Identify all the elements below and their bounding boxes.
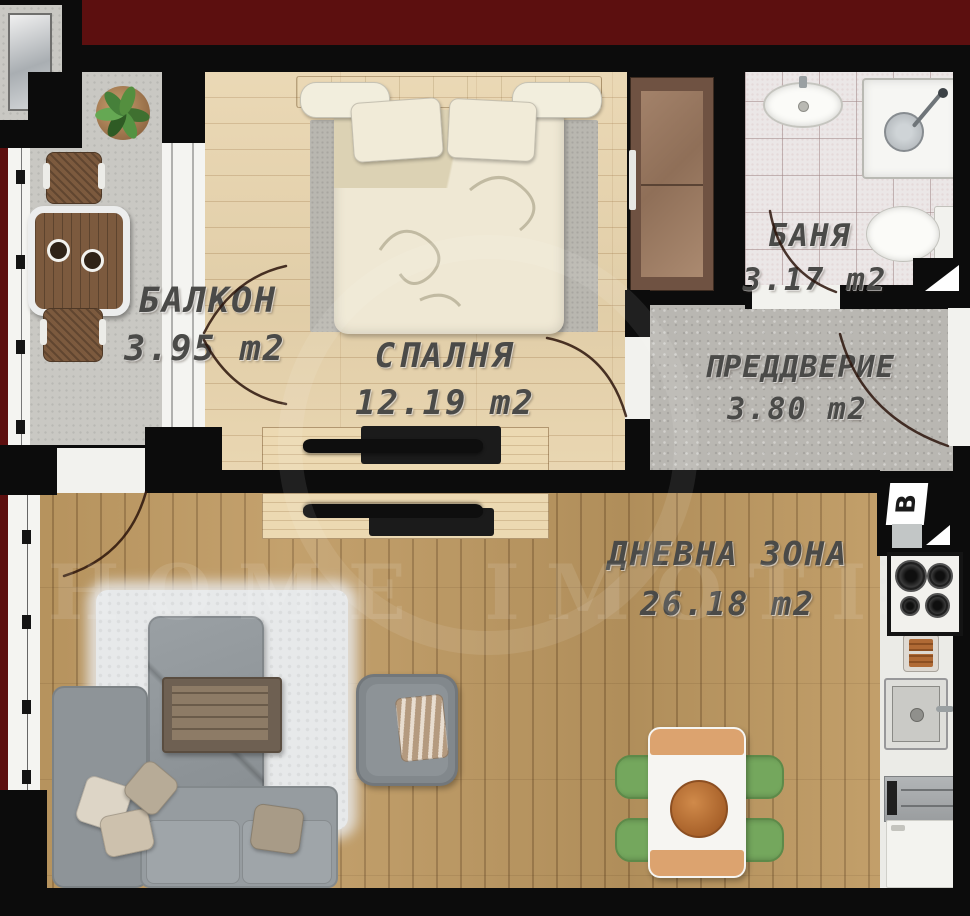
cup [81, 249, 104, 272]
window-frame-tick [22, 770, 31, 784]
balcony-chair-bottom [43, 308, 103, 362]
wall [82, 45, 970, 72]
room-area-bathroom: 3.17 m2 [730, 262, 900, 298]
bathroom-sink [763, 82, 843, 128]
balcony-chair-top [46, 152, 102, 204]
armchair-pillow [395, 694, 449, 763]
kitchen-sink [884, 678, 948, 750]
room-label-living: ДНЕВНА ЗОНА [578, 534, 878, 573]
window-frame-tick [16, 170, 25, 184]
window-frame-tick [16, 420, 25, 434]
drain [798, 101, 809, 112]
room-area-balcony: 3.95 m2 [100, 329, 310, 369]
wardrobe-handle [629, 150, 636, 210]
gas-hob [887, 552, 963, 636]
bed-pillow-left [350, 97, 444, 163]
door-opening-balcony-living [57, 448, 145, 493]
coffee-table [162, 677, 282, 753]
toilet [866, 204, 956, 262]
wall [222, 470, 880, 493]
balcony-side-windows [8, 148, 30, 445]
bowl [670, 780, 728, 838]
faucet [799, 76, 807, 88]
tv [303, 504, 483, 518]
sink-faucet [936, 706, 954, 712]
dining-table [648, 727, 746, 878]
room-label-bathroom: БАНЯ [745, 218, 875, 254]
sofa-seat [140, 786, 338, 888]
door-opening-entrance [948, 308, 970, 446]
wall [62, 0, 82, 148]
bed-pillow-right [446, 98, 537, 163]
window-frame-tick [22, 700, 31, 714]
boiler-label: B [891, 494, 923, 514]
sofa-cushion [146, 820, 240, 884]
room-area-bedroom: 12.19 m2 [320, 383, 570, 423]
room-area-living: 26.18 m2 [605, 584, 850, 623]
tv-console-bedroom [262, 427, 549, 473]
hob-knob [880, 614, 886, 620]
toilet-bowl [866, 206, 940, 262]
wall [0, 888, 970, 916]
window-frame-tick [16, 255, 25, 269]
door-opening-bedroom [625, 337, 650, 419]
room-area-hallway: 3.80 m2 [690, 392, 905, 427]
boiler-base [892, 524, 922, 548]
window-frame-tick [16, 340, 25, 354]
floor-plan: B БАЛКОН 3.95 m2 СПАЛНЯ 12.19 m2 БАНЯ 3.… [0, 0, 970, 916]
plant [94, 84, 152, 142]
hallway-floor [648, 305, 953, 471]
shower-cabin [862, 78, 959, 179]
sofa-pillow [249, 803, 305, 856]
sink-drain [910, 708, 924, 722]
vent-triangle [926, 525, 950, 545]
room-label-balcony: БАЛКОН [108, 281, 308, 321]
cup [47, 239, 70, 262]
facade-band-top [80, 0, 970, 45]
hob-knob [880, 560, 886, 566]
wardrobe [630, 77, 714, 291]
wall [953, 478, 970, 890]
tv [303, 439, 483, 453]
wall [0, 445, 57, 495]
window-frame-tick [22, 530, 31, 544]
room-label-hallway: ПРЕДДВЕРИЕ [652, 350, 947, 385]
wall [0, 120, 62, 148]
armchair [356, 674, 458, 786]
shaft-symbol [913, 258, 963, 294]
dishwasher [884, 776, 962, 822]
boiler-icon: B [886, 483, 928, 525]
wall [0, 790, 47, 916]
hob-knob [880, 578, 886, 584]
window-frame-tick [22, 615, 31, 629]
wall [145, 427, 222, 493]
fridge [886, 820, 958, 888]
wall [162, 45, 205, 143]
tv-console-living [262, 493, 549, 539]
toaster [903, 634, 939, 672]
room-label-bedroom: СПАЛНЯ [330, 336, 560, 376]
hob-knob [880, 596, 886, 602]
